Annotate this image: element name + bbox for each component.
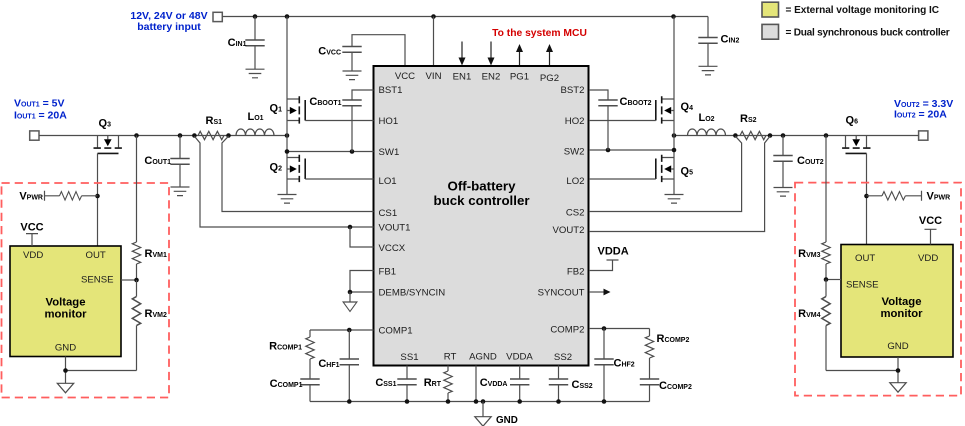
- svg-text:HO2: HO2: [565, 116, 585, 127]
- svg-text:GND: GND: [887, 341, 908, 352]
- svg-text:RVM2: RVM2: [145, 308, 167, 320]
- svg-text:Voltage: Voltage: [46, 296, 86, 308]
- svg-text:COUT1: COUT1: [144, 155, 171, 167]
- svg-text:Q2: Q2: [270, 162, 283, 174]
- svg-text:LO2: LO2: [566, 176, 584, 187]
- svg-text:RS2: RS2: [740, 113, 757, 125]
- svg-text:Q5: Q5: [681, 166, 694, 178]
- svg-text:VDD: VDD: [23, 250, 43, 261]
- svg-text:monitor: monitor: [44, 309, 87, 321]
- svg-text:CCOMP2: CCOMP2: [659, 380, 692, 392]
- svg-text:CHF2: CHF2: [614, 358, 635, 370]
- svg-text:COMP2: COMP2: [550, 325, 584, 336]
- svg-text:buck controller: buck controller: [433, 193, 529, 208]
- svg-text:OUT: OUT: [86, 250, 106, 261]
- svg-text:VIN: VIN: [426, 71, 442, 82]
- svg-text:LO2: LO2: [699, 112, 715, 124]
- svg-text:RVM3: RVM3: [798, 248, 820, 260]
- svg-text:DEMB/SYNCIN: DEMB/SYNCIN: [379, 288, 446, 299]
- svg-text:CIN1: CIN1: [228, 37, 247, 49]
- svg-text:CSS2: CSS2: [572, 379, 593, 391]
- svg-text:Q4: Q4: [681, 101, 694, 113]
- svg-text:RRT: RRT: [424, 377, 442, 389]
- svg-text:RS1: RS1: [206, 115, 223, 127]
- svg-text:VDDA: VDDA: [598, 246, 629, 258]
- svg-text:SW2: SW2: [564, 147, 585, 158]
- svg-text:VOUT1: VOUT1: [379, 223, 411, 234]
- svg-text:BST1: BST1: [379, 85, 403, 96]
- svg-text:PG1: PG1: [510, 71, 529, 82]
- svg-text:VOUT1 = 5V: VOUT1 = 5V: [14, 98, 65, 110]
- svg-text:VPWR: VPWR: [19, 191, 43, 203]
- svg-text:CVDDA: CVDDA: [480, 377, 508, 389]
- svg-text:monitor: monitor: [880, 308, 923, 320]
- svg-text:CHF1: CHF1: [318, 358, 339, 370]
- svg-text:LO1: LO1: [379, 176, 397, 187]
- svg-text:SYNCOUT: SYNCOUT: [538, 288, 585, 299]
- svg-text:Off-battery: Off-battery: [448, 179, 517, 194]
- svg-text:To the system MCU: To the system MCU: [492, 28, 587, 39]
- svg-text:VPWR: VPWR: [927, 191, 951, 203]
- svg-text:VCC: VCC: [395, 71, 415, 82]
- svg-text:VDDA: VDDA: [506, 352, 533, 363]
- svg-text:IOUT1 = 20A: IOUT1 = 20A: [14, 110, 67, 122]
- svg-text:GND: GND: [55, 343, 76, 354]
- svg-text:Q3: Q3: [99, 118, 112, 130]
- svg-text:EN1: EN1: [453, 71, 472, 82]
- svg-text:OUT: OUT: [855, 253, 875, 264]
- svg-text:VDD: VDD: [918, 253, 938, 264]
- svg-text:SENSE: SENSE: [81, 275, 114, 286]
- svg-text:CBOOT2: CBOOT2: [620, 96, 652, 108]
- svg-text:CCOMP1: CCOMP1: [270, 378, 303, 390]
- svg-text:BST2: BST2: [561, 85, 585, 96]
- svg-text:FB1: FB1: [379, 267, 397, 278]
- svg-text:RVM4: RVM4: [798, 308, 820, 320]
- svg-text:EN2: EN2: [482, 71, 501, 82]
- svg-text:VCCX: VCCX: [379, 243, 406, 254]
- svg-text:CVCC: CVCC: [318, 46, 341, 58]
- svg-text:= Dual synchronous buck contro: = Dual synchronous buck controller: [786, 27, 950, 38]
- svg-text:LO1: LO1: [248, 111, 264, 123]
- svg-text:COUT2: COUT2: [797, 155, 824, 167]
- svg-text:SS2: SS2: [554, 352, 572, 363]
- svg-text:SW1: SW1: [379, 147, 400, 158]
- svg-text:PG2: PG2: [540, 73, 559, 84]
- svg-text:HO1: HO1: [379, 116, 399, 127]
- svg-text:Q6: Q6: [846, 115, 859, 127]
- svg-text:CBOOT1: CBOOT1: [309, 96, 341, 108]
- svg-text:GND: GND: [496, 415, 518, 426]
- svg-text:SENSE: SENSE: [846, 280, 879, 291]
- svg-text:battery input: battery input: [137, 21, 201, 33]
- svg-text:RVM1: RVM1: [145, 248, 167, 260]
- svg-text:CS2: CS2: [566, 208, 585, 219]
- svg-text:CS1: CS1: [379, 208, 398, 219]
- svg-text:SS1: SS1: [400, 352, 418, 363]
- svg-text:RCOMP1: RCOMP1: [269, 341, 302, 353]
- svg-text:VOUT2: VOUT2: [553, 225, 585, 236]
- svg-text:IOUT2 = 20A: IOUT2 = 20A: [894, 109, 947, 121]
- svg-text:RT: RT: [444, 352, 457, 363]
- svg-text:AGND: AGND: [469, 352, 497, 363]
- svg-text:CIN2: CIN2: [721, 34, 740, 46]
- svg-text:CSS1: CSS1: [375, 377, 396, 389]
- svg-text:VCC: VCC: [20, 222, 43, 234]
- svg-text:Voltage: Voltage: [882, 296, 922, 308]
- svg-text:VCC: VCC: [919, 215, 942, 227]
- svg-text:FB2: FB2: [567, 267, 585, 278]
- svg-text:COMP1: COMP1: [379, 326, 413, 337]
- svg-text:RCOMP2: RCOMP2: [657, 333, 690, 345]
- svg-text:Q1: Q1: [270, 103, 283, 115]
- svg-text:= External voltage monitoring: = External voltage monitoring IC: [786, 5, 940, 16]
